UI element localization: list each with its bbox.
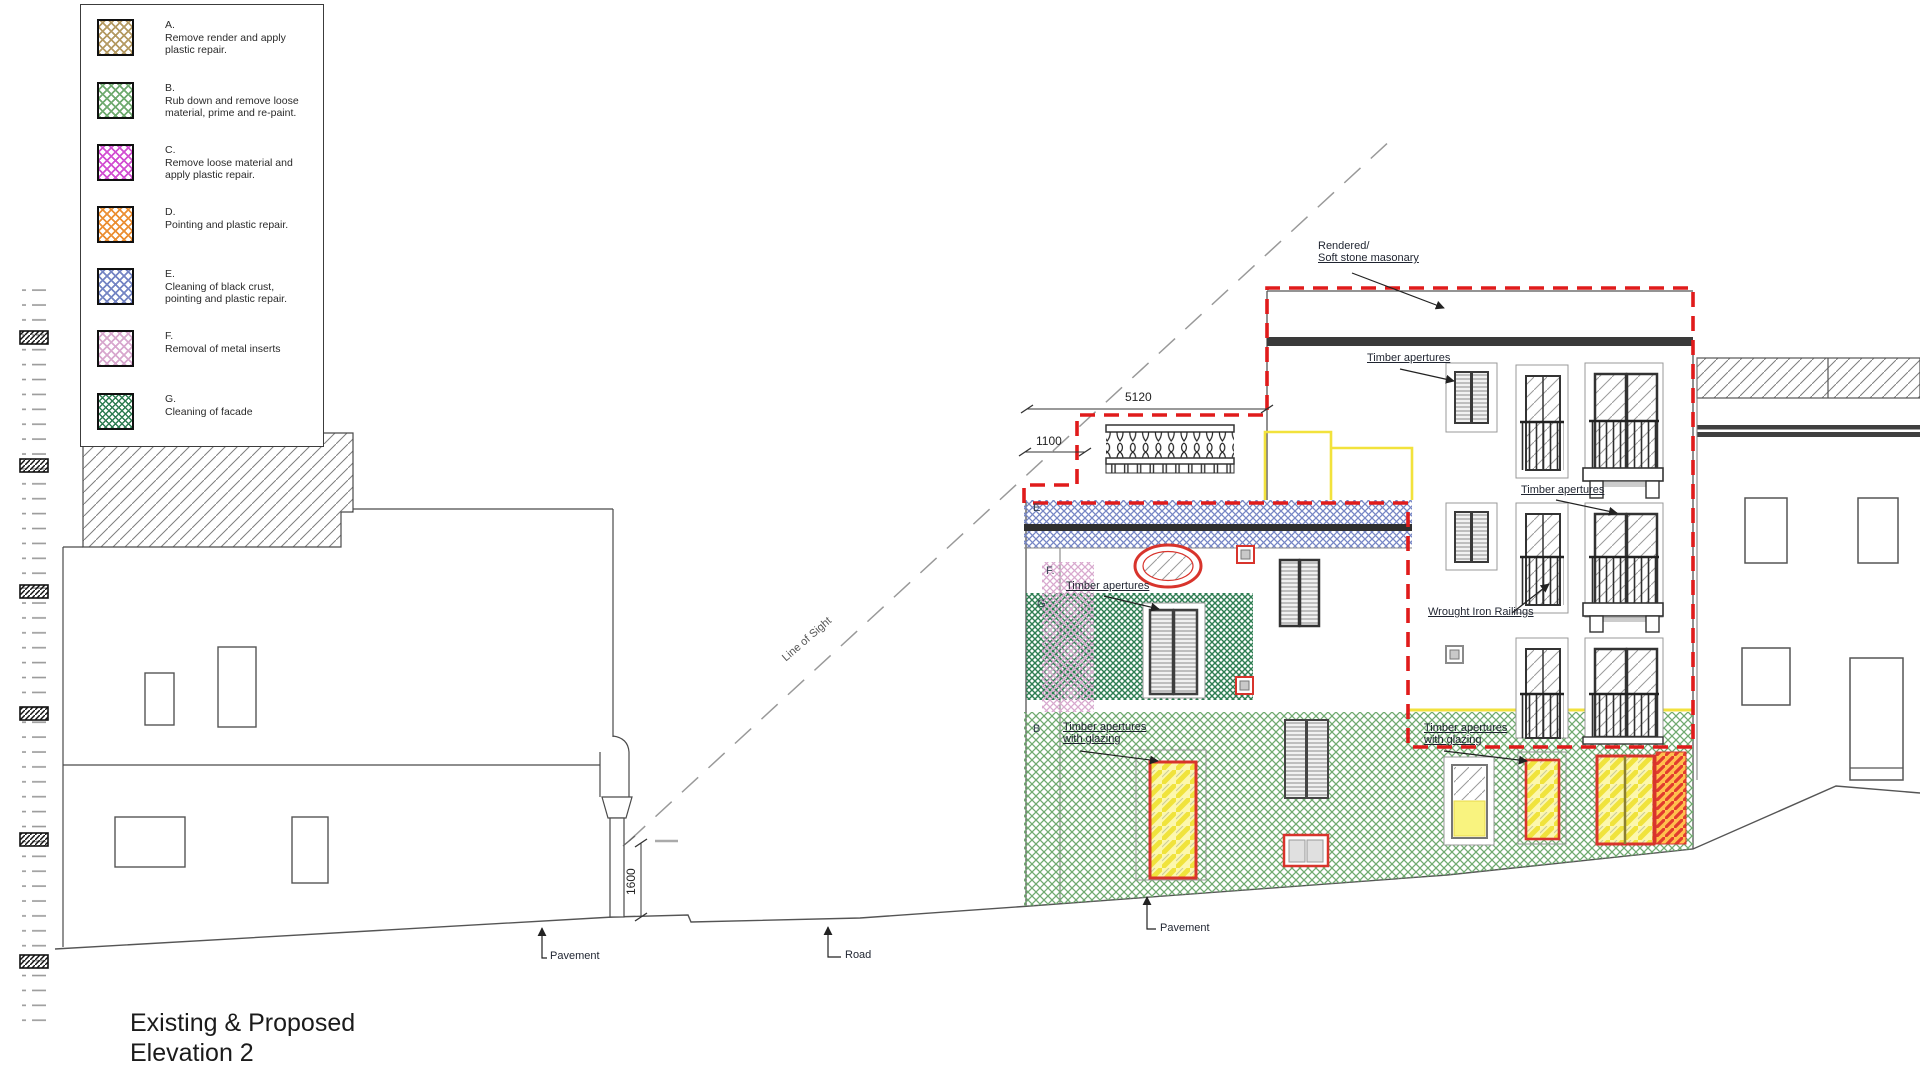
label-pavement-center: Pavement xyxy=(1160,922,1210,934)
zone-letter-f: F. xyxy=(1046,565,1055,577)
drawing-title-line1: Existing & Proposed xyxy=(130,1009,355,1037)
legend-desc: apply plastic repair. xyxy=(165,169,255,181)
legend-desc: Remove loose material and xyxy=(165,157,293,169)
drawing-title-line2: Elevation 2 xyxy=(130,1039,254,1067)
yellow-glazed-door xyxy=(1518,752,1566,844)
shuttered-window xyxy=(1446,363,1497,432)
yellow-double-door xyxy=(1597,756,1654,844)
dim-1600: 1600 xyxy=(624,868,638,895)
legend-swatch-c xyxy=(97,144,134,181)
leader-pavement-center xyxy=(1147,897,1156,929)
dim-1100: 1100 xyxy=(1036,434,1062,448)
drawing-title: Existing & Proposed Elevation 2 xyxy=(130,1008,355,1068)
shuttered-window xyxy=(1446,503,1497,570)
window xyxy=(218,647,256,727)
balcony-door xyxy=(1583,638,1663,744)
legend-desc: Cleaning of black crust, xyxy=(165,281,274,293)
label-timber-apertures-right: Timber apertures xyxy=(1521,484,1604,496)
legend-desc: Pointing and plastic repair. xyxy=(165,219,288,231)
small-red-window xyxy=(1284,835,1328,866)
zone-d-patch xyxy=(1656,752,1686,844)
zone-letter-g: G xyxy=(1037,598,1046,610)
legend-swatch-e xyxy=(97,268,134,305)
shuttered-window xyxy=(1280,560,1319,626)
downpipe xyxy=(610,818,624,917)
elevation-drawing-canvas: A. Remove render and apply plastic repai… xyxy=(0,0,1920,1080)
legend-letter: E. xyxy=(165,268,175,280)
french-window xyxy=(1516,638,1568,738)
legend-letter: F. xyxy=(165,330,173,342)
legend-letter: C. xyxy=(165,144,176,156)
leader-road xyxy=(828,927,841,957)
window xyxy=(1745,498,1787,563)
ground-floor-window xyxy=(1444,757,1494,845)
balcony-door xyxy=(1583,363,1663,498)
dim-5120: 5120 xyxy=(1125,390,1152,404)
legend-desc: Removal of metal inserts xyxy=(165,343,281,355)
zone-letter-b: B xyxy=(1033,723,1040,735)
balcony-door xyxy=(1583,503,1663,632)
window xyxy=(1742,648,1790,705)
legend-letter: G. xyxy=(165,393,176,405)
metal-insert xyxy=(1237,546,1254,563)
label-timber-glazing-right: Timber apertures with glazing xyxy=(1424,722,1507,746)
door xyxy=(1850,658,1903,780)
label-timber-apertures-top: Timber apertures xyxy=(1367,352,1450,364)
section-ruler-strip xyxy=(20,283,48,1030)
legend-box: A. Remove render and apply plastic repai… xyxy=(80,4,324,447)
label-pavement-left: Pavement xyxy=(550,950,600,962)
downpipe-hopper xyxy=(602,797,632,818)
zone-letter-e: E xyxy=(1033,502,1040,514)
french-window xyxy=(1516,365,1568,478)
label-wrought-iron-railings: Wrought Iron Railings xyxy=(1428,606,1534,618)
right-building-roof-hatch xyxy=(1697,358,1920,398)
legend-swatch-b xyxy=(97,82,134,119)
legend-letter: D. xyxy=(165,206,176,218)
left-building xyxy=(63,433,632,947)
legend-swatch-a xyxy=(97,19,134,56)
balustrade xyxy=(1106,425,1234,473)
window xyxy=(115,817,185,867)
cornice-band xyxy=(1267,337,1693,346)
french-window xyxy=(1516,503,1568,613)
legend-desc: plastic repair. xyxy=(165,44,227,56)
legend-desc: Rub down and remove loose xyxy=(165,95,299,107)
legend-swatch-d xyxy=(97,206,134,243)
legend-desc: Remove render and apply xyxy=(165,32,286,44)
proposed-outline-yellow xyxy=(1265,432,1412,500)
legend-swatch-f xyxy=(97,330,134,367)
legend-letter: B. xyxy=(165,82,175,94)
window xyxy=(292,817,328,883)
legend-desc: Cleaning of facade xyxy=(165,406,253,418)
leader-pavement-left xyxy=(542,928,547,958)
label-rendered-masonry: Rendered/ Soft stone masonary xyxy=(1318,240,1419,264)
label-road: Road xyxy=(845,949,871,961)
window xyxy=(145,673,174,725)
window xyxy=(1858,498,1898,563)
legend-swatch-g xyxy=(97,393,134,430)
metal-insert xyxy=(1236,677,1253,694)
shuttered-window xyxy=(1285,720,1328,798)
shuttered-window xyxy=(1143,603,1205,698)
subject-building xyxy=(1024,288,1693,906)
legend-desc: pointing and plastic repair. xyxy=(165,293,287,305)
label-timber-apertures-left: Timber apertures xyxy=(1066,580,1149,592)
label-timber-glazing-left: Timber apertures with glazing xyxy=(1063,721,1146,745)
legend-desc: material, prime and re-paint. xyxy=(165,107,296,119)
left-building-roof-hatch xyxy=(83,433,353,547)
right-building xyxy=(1697,358,1920,780)
metal-insert xyxy=(1446,646,1463,663)
legend-letter: A. xyxy=(165,19,175,31)
